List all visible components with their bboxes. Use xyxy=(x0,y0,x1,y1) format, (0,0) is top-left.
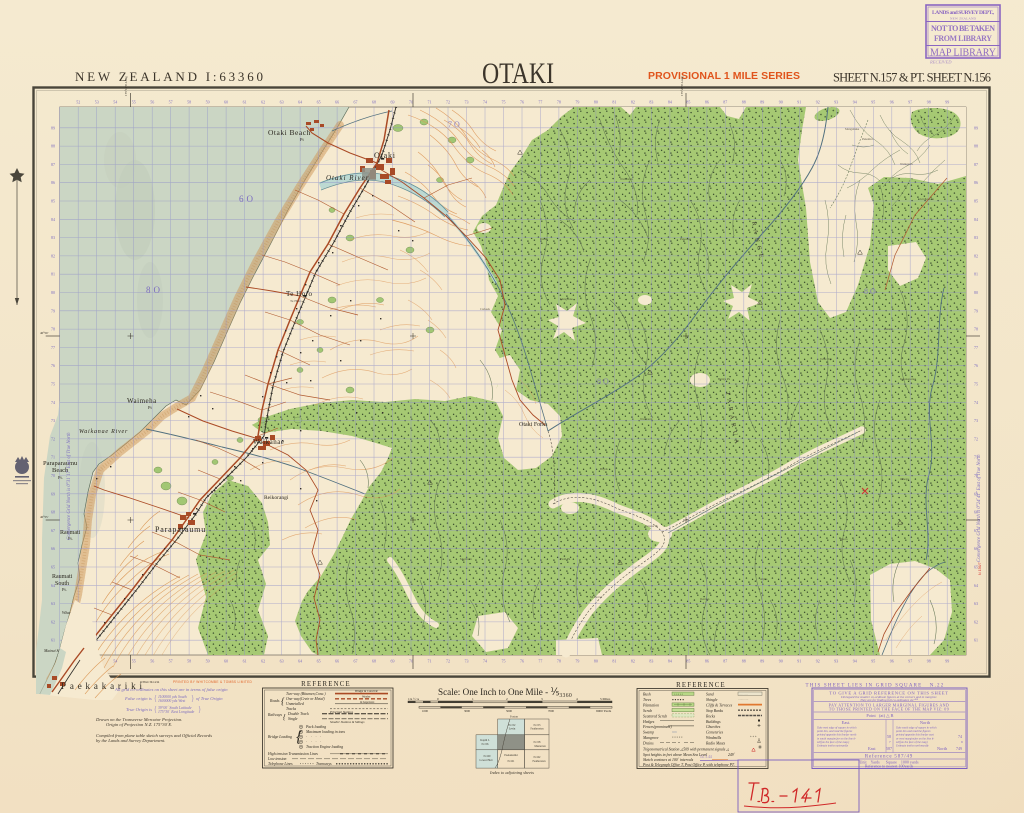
svg-text:76: 76 xyxy=(974,363,978,368)
svg-text:59: 59 xyxy=(206,100,210,105)
svg-text:Field Pk: Field Pk xyxy=(560,557,571,561)
svg-text:87: 87 xyxy=(974,162,978,167)
svg-text:6O: 6O xyxy=(239,194,256,204)
svg-text:59: 59 xyxy=(206,659,210,664)
svg-text:94: 94 xyxy=(853,659,857,664)
svg-text:N.156: N.156 xyxy=(482,743,490,746)
svg-text:82: 82 xyxy=(631,100,635,105)
svg-text:63: 63 xyxy=(51,601,55,606)
svg-text:91: 91 xyxy=(797,659,801,664)
svg-text:69: 69 xyxy=(51,491,55,496)
svg-text:8O: 8O xyxy=(146,285,163,295)
svg-text:81: 81 xyxy=(612,659,616,664)
svg-text:Convergence Grid North is 0°2: Convergence Grid North is 0°24´41˝ East … xyxy=(977,454,982,562)
svg-text:Carkeek: Carkeek xyxy=(480,307,490,311)
svg-text:85: 85 xyxy=(686,100,690,105)
svg-text:86: 86 xyxy=(705,100,709,105)
svg-text:76: 76 xyxy=(51,363,55,368)
svg-text:88: 88 xyxy=(51,144,55,149)
svg-text:Sketch contours at 100´ interv: Sketch contours at 100´ intervals xyxy=(643,758,694,762)
svg-text:55: 55 xyxy=(132,100,136,105)
svg-text:66: 66 xyxy=(335,659,339,664)
svg-text:East.: East. xyxy=(842,720,851,725)
svg-text:73: 73 xyxy=(974,418,978,423)
svg-text:5000: 5000 xyxy=(506,709,513,713)
svg-text:97: 97 xyxy=(908,100,912,105)
svg-text:≈≈≈: ≈≈≈ xyxy=(672,730,677,734)
svg-text:North: North xyxy=(920,720,931,725)
svg-text:80: 80 xyxy=(594,659,598,664)
svg-text:67: 67 xyxy=(354,659,358,664)
svg-text:99: 99 xyxy=(945,659,949,664)
svg-text:90: 90 xyxy=(779,659,783,664)
svg-text:7000: 7000 xyxy=(548,709,555,713)
svg-text:79: 79 xyxy=(575,100,579,105)
svg-text:66: 66 xyxy=(51,546,55,551)
svg-text:NEW ZEALAND I:63360: NEW ZEALAND I:63360 xyxy=(75,69,263,84)
svg-text:74: 74 xyxy=(483,100,487,105)
svg-text:Unmetalled: Unmetalled xyxy=(286,702,304,706)
svg-text:Raumati: Raumati xyxy=(52,574,73,580)
svg-text:Tracks: Tracks xyxy=(286,707,297,711)
svg-text:64: 64 xyxy=(298,100,302,105)
svg-text:Scale: One Inch to One Mile -: Scale: One Inch to One Mile - ⅕₃₃₆₀ xyxy=(438,687,572,698)
svg-text:Rocks: Rocks xyxy=(705,714,716,718)
svg-text:75: 75 xyxy=(974,382,978,387)
svg-text:175°20´E.Long: 175°20´E.Long xyxy=(680,76,684,96)
svg-text:1¼ ½ ¼: 1¼ ½ ¼ xyxy=(408,697,419,701)
svg-text:Kapiti I.: Kapiti I. xyxy=(480,739,490,742)
svg-text:Foxton: Foxton xyxy=(510,716,519,719)
svg-text:78: 78 xyxy=(51,327,55,332)
svg-text:249´: 249´ xyxy=(728,753,736,757)
svg-text:3: 3 xyxy=(541,697,543,701)
svg-text:Drains: Drains xyxy=(642,742,654,746)
svg-text:Wooden: Wooden xyxy=(362,696,371,699)
svg-text:Pukekino: Pukekino xyxy=(862,137,874,141)
svg-text:83: 83 xyxy=(649,659,653,664)
svg-text:7O: 7O xyxy=(448,120,462,129)
svg-text:Hedges: Hedges xyxy=(642,720,655,724)
svg-text:86: 86 xyxy=(51,180,55,185)
svg-text:71: 71 xyxy=(51,455,55,460)
svg-text:70: 70 xyxy=(409,100,413,105)
svg-text:Pack loading: Pack loading xyxy=(305,725,326,729)
svg-text:65: 65 xyxy=(317,100,321,105)
svg-text:77: 77 xyxy=(51,345,55,350)
svg-text:54: 54 xyxy=(113,659,117,664)
svg-text:7: 7 xyxy=(889,740,891,744)
svg-text:64: 64 xyxy=(298,659,302,664)
svg-text:88: 88 xyxy=(974,144,978,149)
svg-text:57: 57 xyxy=(169,659,173,664)
svg-text:Cliffs & Terraces: Cliffs & Terraces xyxy=(706,703,733,707)
svg-text:Railways: Railways xyxy=(267,713,282,717)
svg-text:58: 58 xyxy=(887,734,891,739)
svg-text:61: 61 xyxy=(243,100,247,105)
svg-text:82: 82 xyxy=(974,253,978,258)
svg-text:Sand: Sand xyxy=(706,693,714,697)
svg-text:82: 82 xyxy=(631,659,635,664)
svg-text:Alpha: Alpha xyxy=(760,577,768,581)
svg-text:67: 67 xyxy=(51,528,55,533)
svg-text:61: 61 xyxy=(243,659,247,664)
svg-text:. . . . . . . .: . . . . . . . . xyxy=(739,693,748,696)
svg-text:3000: 3000 xyxy=(464,709,471,713)
svg-text:71: 71 xyxy=(428,100,432,105)
svg-text:67: 67 xyxy=(354,100,358,105)
svg-text:· · · ·: · · · · xyxy=(306,735,321,739)
svg-text:Renata: Renata xyxy=(884,327,893,331)
svg-text:Cemeteries: Cemeteries xyxy=(706,731,724,735)
svg-text:FROM LIBRARY: FROM LIBRARY xyxy=(934,34,992,43)
svg-text:● ● ● ● ●: ● ● ● ● ● xyxy=(672,698,684,702)
svg-text:Mangaone: Mangaone xyxy=(560,297,573,301)
svg-text:62: 62 xyxy=(51,619,55,624)
svg-text:83: 83 xyxy=(51,235,55,240)
svg-text:Scrub: Scrub xyxy=(643,709,652,713)
svg-text:Waingawa: Waingawa xyxy=(900,162,913,166)
svg-text:62: 62 xyxy=(974,619,978,624)
svg-text:Bush: Bush xyxy=(643,693,651,697)
svg-text:749: 749 xyxy=(956,746,962,751)
svg-text:88: 88 xyxy=(742,100,746,105)
svg-text:73: 73 xyxy=(465,659,469,664)
svg-text:Bridge Pk: Bridge Pk xyxy=(718,377,731,381)
svg-text:{: { xyxy=(281,696,285,706)
svg-text:74: 74 xyxy=(958,734,962,739)
svg-text:98: 98 xyxy=(927,100,931,105)
svg-text:Maximum loading in tons: Maximum loading in tons xyxy=(305,730,345,734)
svg-text:1000: 1000 xyxy=(422,709,429,713)
svg-text:Traction Engine loading: Traction Engine loading xyxy=(306,745,343,749)
svg-text:Quoin: Quoin xyxy=(840,537,848,541)
svg-text:REFERENCE: REFERENCE xyxy=(676,682,726,689)
svg-text:92: 92 xyxy=(816,100,820,105)
svg-text:73: 73 xyxy=(465,100,469,105)
svg-text:80: 80 xyxy=(594,100,598,105)
svg-text:96: 96 xyxy=(890,100,894,105)
svg-text:68: 68 xyxy=(372,100,376,105)
svg-text:74: 74 xyxy=(974,400,978,405)
svg-text:77: 77 xyxy=(538,100,542,105)
svg-text:Fences(prominent): Fences(prominent) xyxy=(642,725,672,729)
svg-text:Pt.: Pt. xyxy=(58,475,63,480)
svg-text:98: 98 xyxy=(927,659,931,664)
svg-text:Index to adjoining sheets: Index to adjoining sheets xyxy=(489,770,534,775)
svg-text:Table Top: Table Top xyxy=(820,357,832,361)
svg-text:Origin of Projection N.Z. 17: Origin of Projection N.Z. 175°30´E. xyxy=(106,722,172,727)
svg-text:65: 65 xyxy=(51,565,55,570)
svg-text:88: 88 xyxy=(742,659,746,664)
svg-text:Otaki: Otaki xyxy=(374,151,396,160)
svg-text:76: 76 xyxy=(520,100,524,105)
svg-text:Waimeha: Waimeha xyxy=(127,397,157,405)
svg-text:75: 75 xyxy=(51,382,55,387)
svg-text:81: 81 xyxy=(612,100,616,105)
svg-text:W.Blair 364 4/44: W.Blair 364 4/44 xyxy=(140,681,160,684)
svg-text:95: 95 xyxy=(871,100,875,105)
svg-text:o o o o o: o o o o o xyxy=(674,693,684,696)
svg-text:Dennan: Dennan xyxy=(700,597,710,601)
svg-text:75: 75 xyxy=(502,659,506,664)
svg-text:Plantation: Plantation xyxy=(642,703,659,707)
svg-text:LANDS and SURVEY DEPT.,: LANDS and SURVEY DEPT., xyxy=(932,10,995,16)
svg-text:84: 84 xyxy=(51,217,55,222)
svg-text:74: 74 xyxy=(51,400,55,405)
svg-text:2: 2 xyxy=(506,697,508,701)
svg-text:Titi: Titi xyxy=(650,647,654,651)
svg-text:+ + +: + + + xyxy=(750,734,757,738)
svg-text:40°50´: 40°50´ xyxy=(40,331,49,335)
svg-text:14. 5.44: 14. 5.44 xyxy=(700,755,712,759)
svg-text:Kapakapanui: Kapakapanui xyxy=(900,377,916,381)
svg-text:58: 58 xyxy=(187,659,191,664)
svg-text:Waitatapia: Waitatapia xyxy=(620,177,633,181)
svg-text:TO THOSE PRINTED ON THE FACE O: TO THOSE PRINTED ON THE FACE OF THE MAP … xyxy=(829,707,949,712)
svg-text:Girdlestone: Girdlestone xyxy=(920,197,935,201)
svg-text:75: 75 xyxy=(502,100,506,105)
svg-text:72: 72 xyxy=(974,436,978,441)
svg-text:68: 68 xyxy=(372,659,376,664)
svg-text:Telephone Lines: Telephone Lines xyxy=(268,762,293,766)
svg-text:1600000 yds West: 1600000 yds West xyxy=(158,699,186,703)
svg-text:63: 63 xyxy=(280,100,284,105)
svg-text:80: 80 xyxy=(974,290,978,295)
svg-text:Spot heights in feet above Mea: Spot heights in feet above Mean Sea Leve… xyxy=(643,753,707,757)
svg-text:73: 73 xyxy=(51,418,55,423)
svg-text:Tararua Pk: Tararua Pk xyxy=(645,524,659,528)
svg-text:95: 95 xyxy=(871,659,875,664)
svg-text:78: 78 xyxy=(974,327,978,332)
svg-text:74: 74 xyxy=(483,659,487,664)
svg-text:84: 84 xyxy=(668,100,672,105)
svg-text:High tension Transmission Line: High tension Transmission Lines xyxy=(267,752,318,756)
svg-text:They are for finding full co-o: They are for finding full co-ordinates v… xyxy=(860,698,919,702)
svg-text:Reikorangi: Reikorangi xyxy=(264,495,289,501)
svg-text:Estimate tenths northwardly: Estimate tenths northwardly xyxy=(895,744,929,748)
svg-text:8O: 8O xyxy=(864,287,878,296)
svg-text:57: 57 xyxy=(169,100,173,105)
svg-text:Waiotauru: Waiotauru xyxy=(640,417,653,421)
svg-text:Otaki Forks: Otaki Forks xyxy=(519,422,548,428)
svg-text:Trigonometrical Station △509: Trigonometrical Station △509 with perman… xyxy=(643,748,729,752)
svg-text:Reference to nearest 100yards: Reference to nearest 100yards xyxy=(865,763,914,768)
svg-text:Mangrove: Mangrove xyxy=(642,736,659,740)
svg-text:Boyds: Boyds xyxy=(600,467,609,471)
svg-text:Convergence Grid North is 0°3: Convergence Grid North is 0°31´17˝ East … xyxy=(67,432,72,540)
svg-text:False origin is: False origin is xyxy=(124,696,152,701)
svg-text:81: 81 xyxy=(51,272,55,277)
svg-text:Te Horo: Te Horo xyxy=(290,299,302,303)
svg-text:True Origin is: True Origin is xyxy=(126,707,152,712)
svg-text:70: 70 xyxy=(409,659,413,664)
svg-text:77: 77 xyxy=(538,659,542,664)
svg-text:63: 63 xyxy=(974,601,978,606)
svg-text:One-way(Crete or Metal): One-way(Crete or Metal) xyxy=(286,697,325,701)
svg-text:Otaki River: Otaki River xyxy=(326,174,369,182)
svg-text:82: 82 xyxy=(51,253,55,258)
svg-text:5 Miles: 5 Miles xyxy=(600,697,611,701)
svg-text:{: { xyxy=(283,713,286,721)
svg-text:Pukeatua: Pukeatua xyxy=(680,237,692,241)
svg-text:58: 58 xyxy=(187,100,191,105)
svg-text:Masterton: Masterton xyxy=(534,745,546,748)
svg-text:Omega: Omega xyxy=(900,477,909,481)
svg-text:Estimate tenths eastwardly: Estimate tenths eastwardly xyxy=(816,744,849,748)
svg-text:175°30´ East Longitude: 175°30´ East Longitude xyxy=(158,710,195,714)
svg-text:63: 63 xyxy=(280,659,284,664)
svg-text:Paekakariki: Paekakariki xyxy=(504,754,517,757)
svg-text:Rahui: Rahui xyxy=(540,237,547,241)
svg-text:OTAKI: OTAKI xyxy=(482,57,554,90)
svg-text:East: East xyxy=(868,746,876,751)
svg-text:60: 60 xyxy=(224,659,228,664)
svg-text:94: 94 xyxy=(853,100,857,105)
svg-text:Windmills: Windmills xyxy=(706,736,722,740)
svg-text:Tramways: Tramways xyxy=(316,762,332,766)
svg-text:52: 52 xyxy=(76,100,80,105)
svg-text:93: 93 xyxy=(834,100,838,105)
svg-text:54: 54 xyxy=(113,100,117,105)
svg-text:NEW ZEALAND: NEW ZEALAND xyxy=(950,17,977,21)
svg-text:78: 78 xyxy=(557,659,561,664)
svg-text:Low tension: Low tension xyxy=(267,757,287,761)
svg-text:Waikanae: Waikanae xyxy=(253,438,284,446)
svg-text:587: 587 xyxy=(886,746,892,751)
svg-text:9000 Yards: 9000 Yards xyxy=(596,709,612,713)
svg-text:Bridge Loading: Bridge Loading xyxy=(268,735,292,739)
svg-text:93: 93 xyxy=(834,659,838,664)
svg-text:· · · ·: · · · · xyxy=(306,740,321,744)
svg-text:SHEET N.157 & PT. SHEET N.156: SHEET N.157 & PT. SHEET N.156 xyxy=(833,71,991,85)
svg-text:Trees: Trees xyxy=(643,698,652,702)
svg-text:76: 76 xyxy=(520,659,524,664)
svg-text:PROVISIONAL 1 MILE SERIES: PROVISIONAL 1 MILE SERIES xyxy=(648,70,800,82)
svg-text:72: 72 xyxy=(446,100,450,105)
svg-text:MAP LIBRARY: MAP LIBRARY xyxy=(930,48,996,59)
svg-text:Buildings: Buildings xyxy=(706,720,721,724)
svg-text:1: 1 xyxy=(472,697,474,701)
svg-text:85: 85 xyxy=(686,659,690,664)
svg-text:40°55´: 40°55´ xyxy=(40,515,49,519)
svg-text:89: 89 xyxy=(51,125,55,130)
svg-text:89: 89 xyxy=(760,100,764,105)
svg-text:53: 53 xyxy=(95,100,99,105)
svg-text:89: 89 xyxy=(974,125,978,130)
svg-text:Point (at) △ R: Point (at) △ R xyxy=(866,713,893,718)
svg-text:Bridge & Concrete: Bridge & Concrete xyxy=(355,689,379,693)
svg-text:97: 97 xyxy=(908,659,912,664)
svg-text:Scattered Scrub: Scattered Scrub xyxy=(643,714,667,718)
svg-text:86: 86 xyxy=(705,659,709,664)
svg-text:85: 85 xyxy=(974,199,978,204)
svg-text:Roads: Roads xyxy=(269,699,280,703)
svg-text:Featherston: Featherston xyxy=(532,760,546,763)
svg-text:NOT TO BE TAKEN: NOT TO BE TAKEN xyxy=(931,24,995,33)
svg-text:Lower Hutt: Lower Hutt xyxy=(480,759,493,762)
svg-text:Waikanae River: Waikanae River xyxy=(79,429,128,435)
svg-text:84: 84 xyxy=(974,217,978,222)
svg-text:96: 96 xyxy=(890,659,894,664)
svg-text:60: 60 xyxy=(224,100,228,105)
svg-text:92: 92 xyxy=(816,659,820,664)
svg-text:80: 80 xyxy=(51,290,55,295)
svg-text:71: 71 xyxy=(428,659,432,664)
svg-text:Swamp: Swamp xyxy=(643,731,654,735)
svg-text:72: 72 xyxy=(446,659,450,664)
svg-text:N.161: N.161 xyxy=(508,760,516,763)
svg-text:68: 68 xyxy=(51,510,55,515)
svg-text:87: 87 xyxy=(723,659,727,664)
svg-text:79: 79 xyxy=(575,659,579,664)
svg-text:All grid co-ordinates on this: All grid co-ordinates on this sheet are … xyxy=(114,687,228,692)
svg-text:83: 83 xyxy=(649,100,653,105)
svg-text:61: 61 xyxy=(974,638,978,643)
svg-text:99: 99 xyxy=(945,100,949,105)
svg-text:PRINTED BY WHITCOMBE & TOM: PRINTED BY WHITCOMBE & TOMBS LIMITED xyxy=(173,680,253,684)
svg-text:55: 55 xyxy=(132,659,136,664)
svg-text:77: 77 xyxy=(974,345,978,350)
svg-text:69: 69 xyxy=(391,100,395,105)
svg-text:87: 87 xyxy=(723,100,727,105)
svg-text:RECEIVED: RECEIVED xyxy=(929,60,952,65)
svg-text:62: 62 xyxy=(261,659,265,664)
svg-text:86: 86 xyxy=(974,180,978,185)
svg-text:81: 81 xyxy=(974,272,978,277)
svg-text:84: 84 xyxy=(668,659,672,664)
svg-text:85: 85 xyxy=(51,199,55,204)
svg-text:* * * * *: * * * * * xyxy=(672,735,683,739)
svg-text:············: ············ xyxy=(738,699,749,702)
svg-text:Pt.: Pt. xyxy=(62,587,67,592)
svg-text:62: 62 xyxy=(261,100,265,105)
svg-text:Mt Hector: Mt Hector xyxy=(590,595,602,599)
svg-text:Shingle: Shingle xyxy=(706,698,718,702)
svg-text:N 156/7: N 156/7 xyxy=(978,562,982,575)
svg-text:89: 89 xyxy=(760,659,764,664)
svg-text:N.160: N.160 xyxy=(484,755,492,758)
svg-text:56: 56 xyxy=(150,659,154,664)
svg-text:Double Track: Double Track xyxy=(287,712,309,716)
svg-text:North: North xyxy=(937,746,948,751)
svg-text:56: 56 xyxy=(150,100,154,105)
svg-text:64: 64 xyxy=(974,583,978,588)
svg-text:Otaki Beach: Otaki Beach xyxy=(268,128,311,137)
svg-text:Paraparaumu: Paraparaumu xyxy=(155,525,206,534)
svg-text:N.158: N.158 xyxy=(534,741,542,744)
svg-text:Paraparaumu: Paraparaumu xyxy=(43,460,78,467)
svg-text:N.162: N.162 xyxy=(534,756,542,759)
svg-text:79: 79 xyxy=(51,308,55,313)
svg-text:Smaller Stations & Sidings: Smaller Stations & Sidings xyxy=(330,720,365,724)
svg-text:Churches: Churches xyxy=(706,725,721,729)
svg-text:91: 91 xyxy=(797,100,801,105)
svg-text:Single: Single xyxy=(288,717,298,721)
svg-text:Radio Masts: Radio Masts xyxy=(705,742,726,746)
svg-text:65: 65 xyxy=(317,659,321,664)
svg-text:Featherston: Featherston xyxy=(530,728,544,731)
svg-text:Te Horo: Te Horo xyxy=(286,290,313,298)
svg-text:Stop Banks: Stop Banks xyxy=(706,709,724,713)
svg-text:REFERENCE: REFERENCE xyxy=(301,681,351,688)
svg-text:0: 0 xyxy=(437,697,439,701)
svg-text:78: 78 xyxy=(557,100,561,105)
svg-text:Mangahuka: Mangahuka xyxy=(845,127,860,131)
svg-text:Maymorn: Maymorn xyxy=(460,557,472,561)
svg-text:69: 69 xyxy=(391,659,395,664)
svg-text:72: 72 xyxy=(51,436,55,441)
